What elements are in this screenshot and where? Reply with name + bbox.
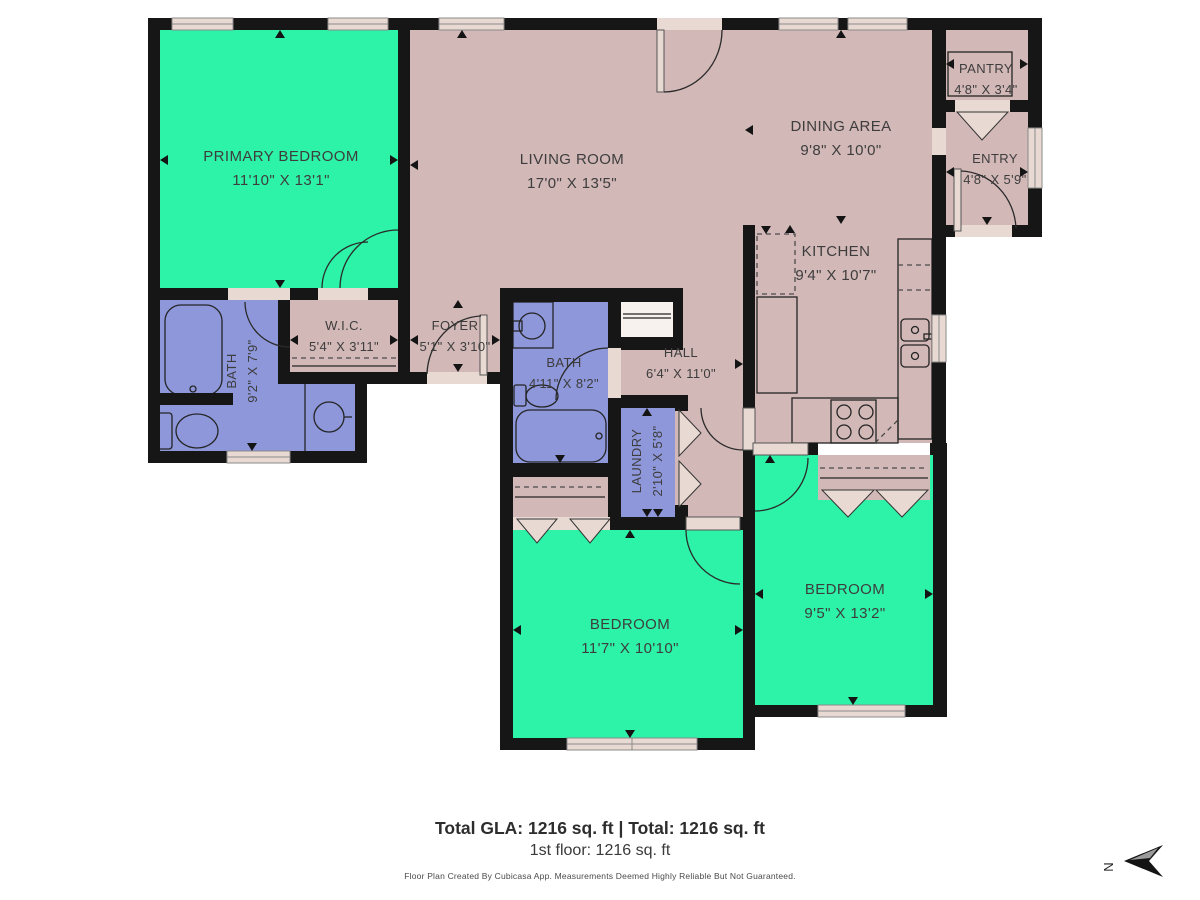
disclaimer-text: Floor Plan Created By Cubicasa App. Meas… (0, 871, 1200, 881)
total-area-text: Total GLA: 1216 sq. ft | Total: 1216 sq.… (0, 818, 1200, 839)
room-label-foyer: FOYER 5'1" X 3'10" (419, 316, 490, 358)
room-label-kitchen: KITCHEN 9'4" X 10'7" (795, 240, 876, 288)
room-name: BEDROOM (804, 578, 885, 602)
room-name: LIVING ROOM (520, 148, 624, 172)
room-dims: 9'4" X 10'7" (795, 264, 876, 288)
room-dims: 9'8" X 10'0" (790, 139, 891, 163)
room-name: DINING AREA (790, 115, 891, 139)
room-dims: 17'0" X 13'5" (520, 172, 624, 196)
door-opening (932, 128, 946, 155)
floor-area-text: 1st floor: 1216 sq. ft (0, 842, 1200, 860)
room-label-primary-bedroom: PRIMARY BEDROOM 11'10" X 13'1" (203, 145, 358, 193)
room-label-living-room: LIVING ROOM 17'0" X 13'5" (520, 148, 624, 196)
door-opening (955, 100, 1010, 112)
room-dims: 4'8" X 3'4" (954, 80, 1017, 101)
floor-plan-drawing: N (0, 0, 1200, 900)
door-opening (608, 348, 621, 398)
room-dims: 11'10" X 13'1" (203, 169, 358, 193)
room-name: KITCHEN (795, 240, 876, 264)
room-dims: 4'11" X 8'2" (529, 374, 599, 395)
room-label-dining-area: DINING AREA 9'8" X 10'0" (790, 115, 891, 163)
door-opening (955, 225, 1012, 237)
room-label-pantry: PANTRY 4'8" X 3'4" (954, 59, 1017, 101)
room-name: PRIMARY BEDROOM (203, 145, 358, 169)
door-opening (228, 288, 290, 300)
door-opening (657, 18, 722, 30)
door-opening (318, 288, 368, 300)
room-name: FOYER (419, 316, 490, 337)
room-dims: 6'4" X 11'0" (646, 364, 716, 385)
door-leaf (753, 443, 808, 455)
door-leaf (954, 169, 961, 231)
floor-plan: N PRIMARY BEDROOM 11'10" X 13'1" LIVING … (0, 0, 1200, 900)
room-label-wic: W.I.C. 5'4" X 3'11" (309, 316, 379, 358)
room-name: PANTRY (954, 59, 1017, 80)
door-leaf (686, 517, 740, 530)
room-dims: 9'2" X 7'9" (243, 339, 264, 402)
room-label-laundry: LAUNDRY 2'10" X 5'8" (627, 425, 669, 496)
room-label-bedroom-center: BEDROOM 11'7" X 10'10" (581, 613, 679, 661)
room-label-bath-2: BATH 4'11" X 8'2" (529, 353, 599, 395)
door-leaf (657, 30, 664, 92)
room-name: W.I.C. (309, 316, 379, 337)
room-dims: 2'10" X 5'8" (648, 425, 669, 496)
room-name: LAUNDRY (627, 425, 648, 496)
room-dims: 5'4" X 3'11" (309, 337, 379, 358)
room-name: BEDROOM (581, 613, 679, 637)
room-dims: 9'5" X 13'2" (804, 602, 885, 626)
door-opening (427, 372, 487, 384)
room-label-entry: ENTRY 4'8" X 5'9" (963, 149, 1026, 191)
room-name: BATH (529, 353, 599, 374)
room-label-bath-primary: BATH 9'2" X 7'9" (222, 339, 264, 402)
room-dims: 4'8" X 5'9" (963, 170, 1026, 191)
room-name: ENTRY (963, 149, 1026, 170)
hall-closet-interior (621, 302, 673, 337)
room-dims: 5'1" X 3'10" (419, 337, 490, 358)
room-name: BATH (222, 339, 243, 402)
room-label-hall: HALL 6'4" X 11'0" (646, 343, 716, 385)
room-name: HALL (646, 343, 716, 364)
room-dims: 11'7" X 10'10" (581, 637, 679, 661)
room-label-bedroom-right: BEDROOM 9'5" X 13'2" (804, 578, 885, 626)
